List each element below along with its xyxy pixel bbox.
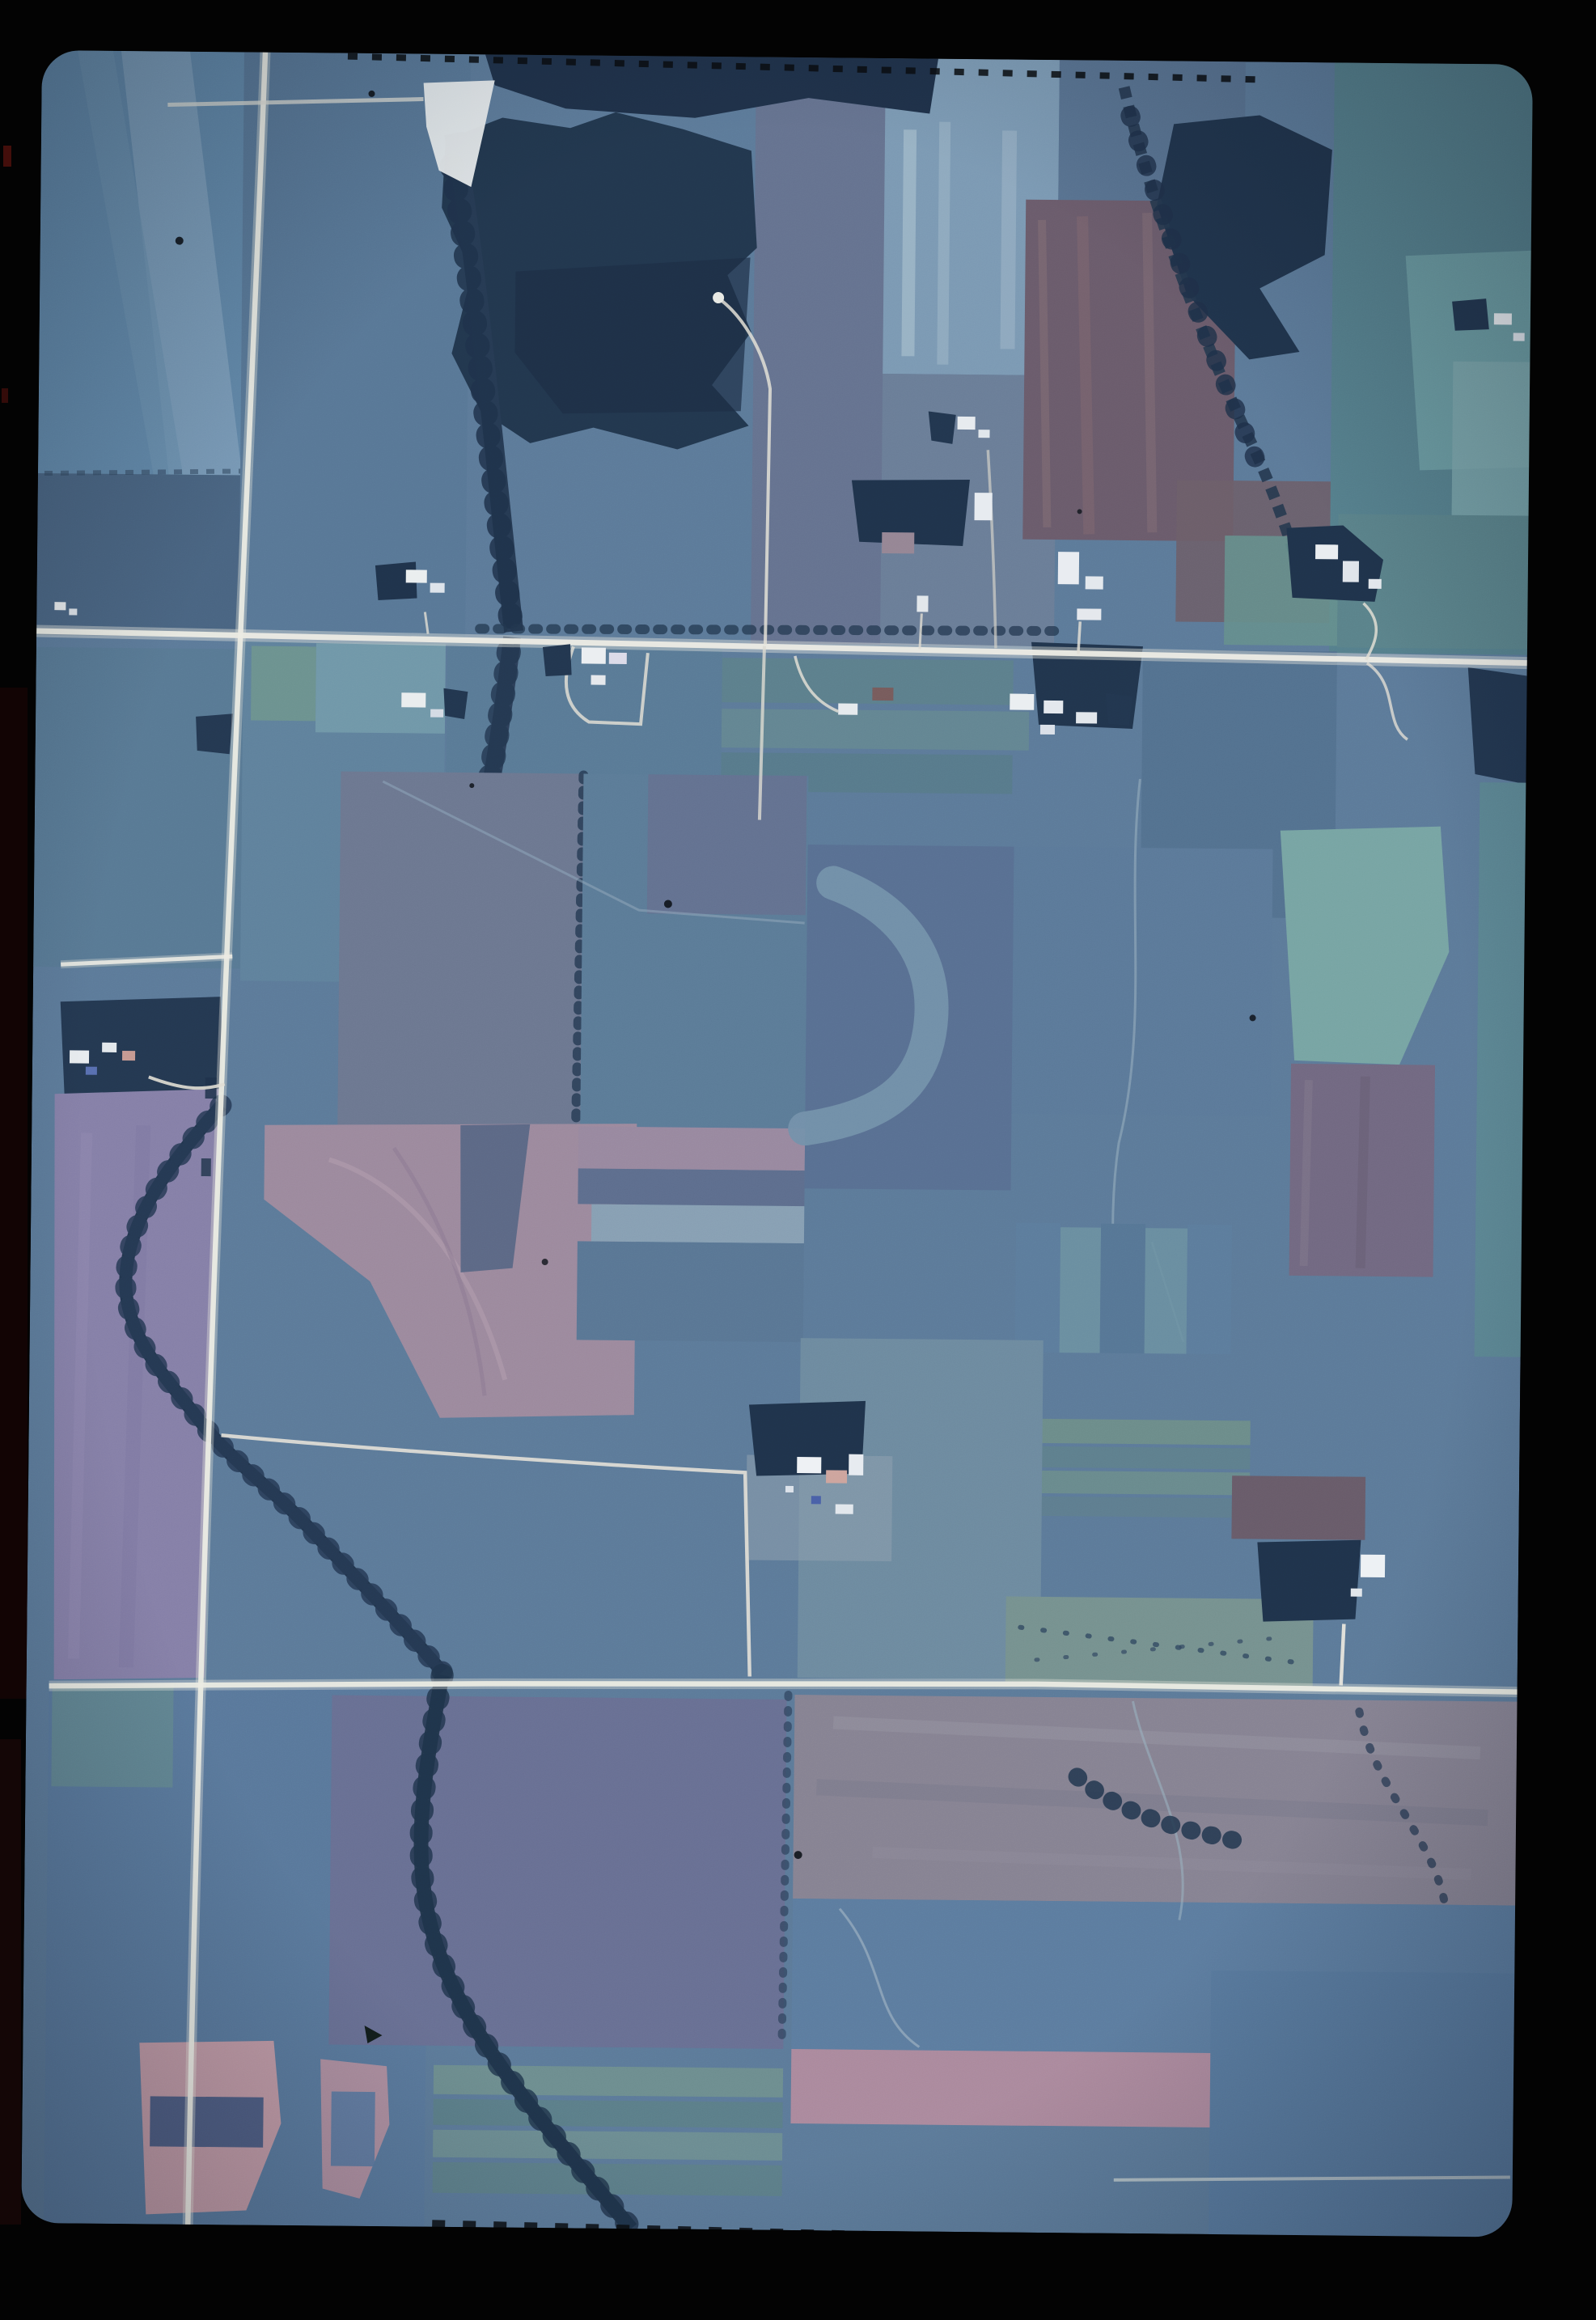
photo-frame — [21, 50, 1535, 2244]
mount-red-streak — [0, 1739, 21, 2225]
slide-scan-root — [0, 0, 1596, 2320]
mount-red-chip — [3, 146, 11, 167]
mount-red-streak — [0, 688, 28, 1699]
mount-red-chip — [2, 388, 8, 403]
aerial-photo-slide — [0, 0, 1596, 2320]
film-grain-overlay — [21, 50, 1533, 2237]
